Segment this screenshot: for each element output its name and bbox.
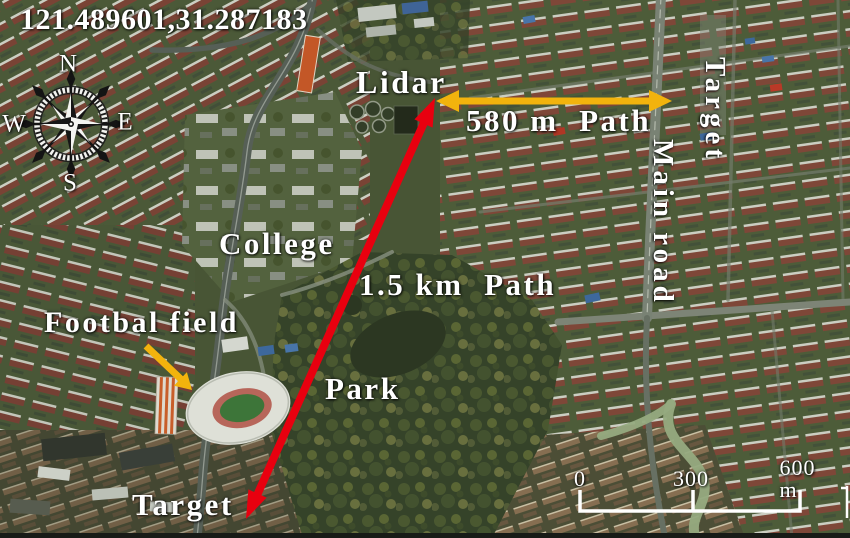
path-1-5km-label: 1.5 km Path <box>359 269 556 300</box>
compass-west-label: W <box>2 112 26 137</box>
path-580m-label: 580 m Path <box>466 105 651 136</box>
scale-300-label: 300 <box>673 468 709 490</box>
college-label: College <box>219 228 335 259</box>
main-road-label: Main road <box>648 139 677 306</box>
compass-south-label: S <box>63 171 77 196</box>
satellite-map-figure: 121.489601,31.287183 N W E S Lidar 580 m… <box>0 0 850 538</box>
coordinates-label: 121.489601,31.287183 <box>20 5 308 35</box>
scale-600m-label: 600 m <box>780 457 827 501</box>
lidar-label: Lidar <box>356 66 447 98</box>
football-field-label: Footbal field <box>44 308 239 338</box>
park-label: Park <box>325 373 400 404</box>
target-south-label: Target <box>132 489 234 520</box>
compass-north-label: N <box>59 52 77 77</box>
scale-0-label: 0 <box>574 468 586 490</box>
target-east-label: Target <box>700 57 729 162</box>
compass-east-label: E <box>117 110 132 135</box>
